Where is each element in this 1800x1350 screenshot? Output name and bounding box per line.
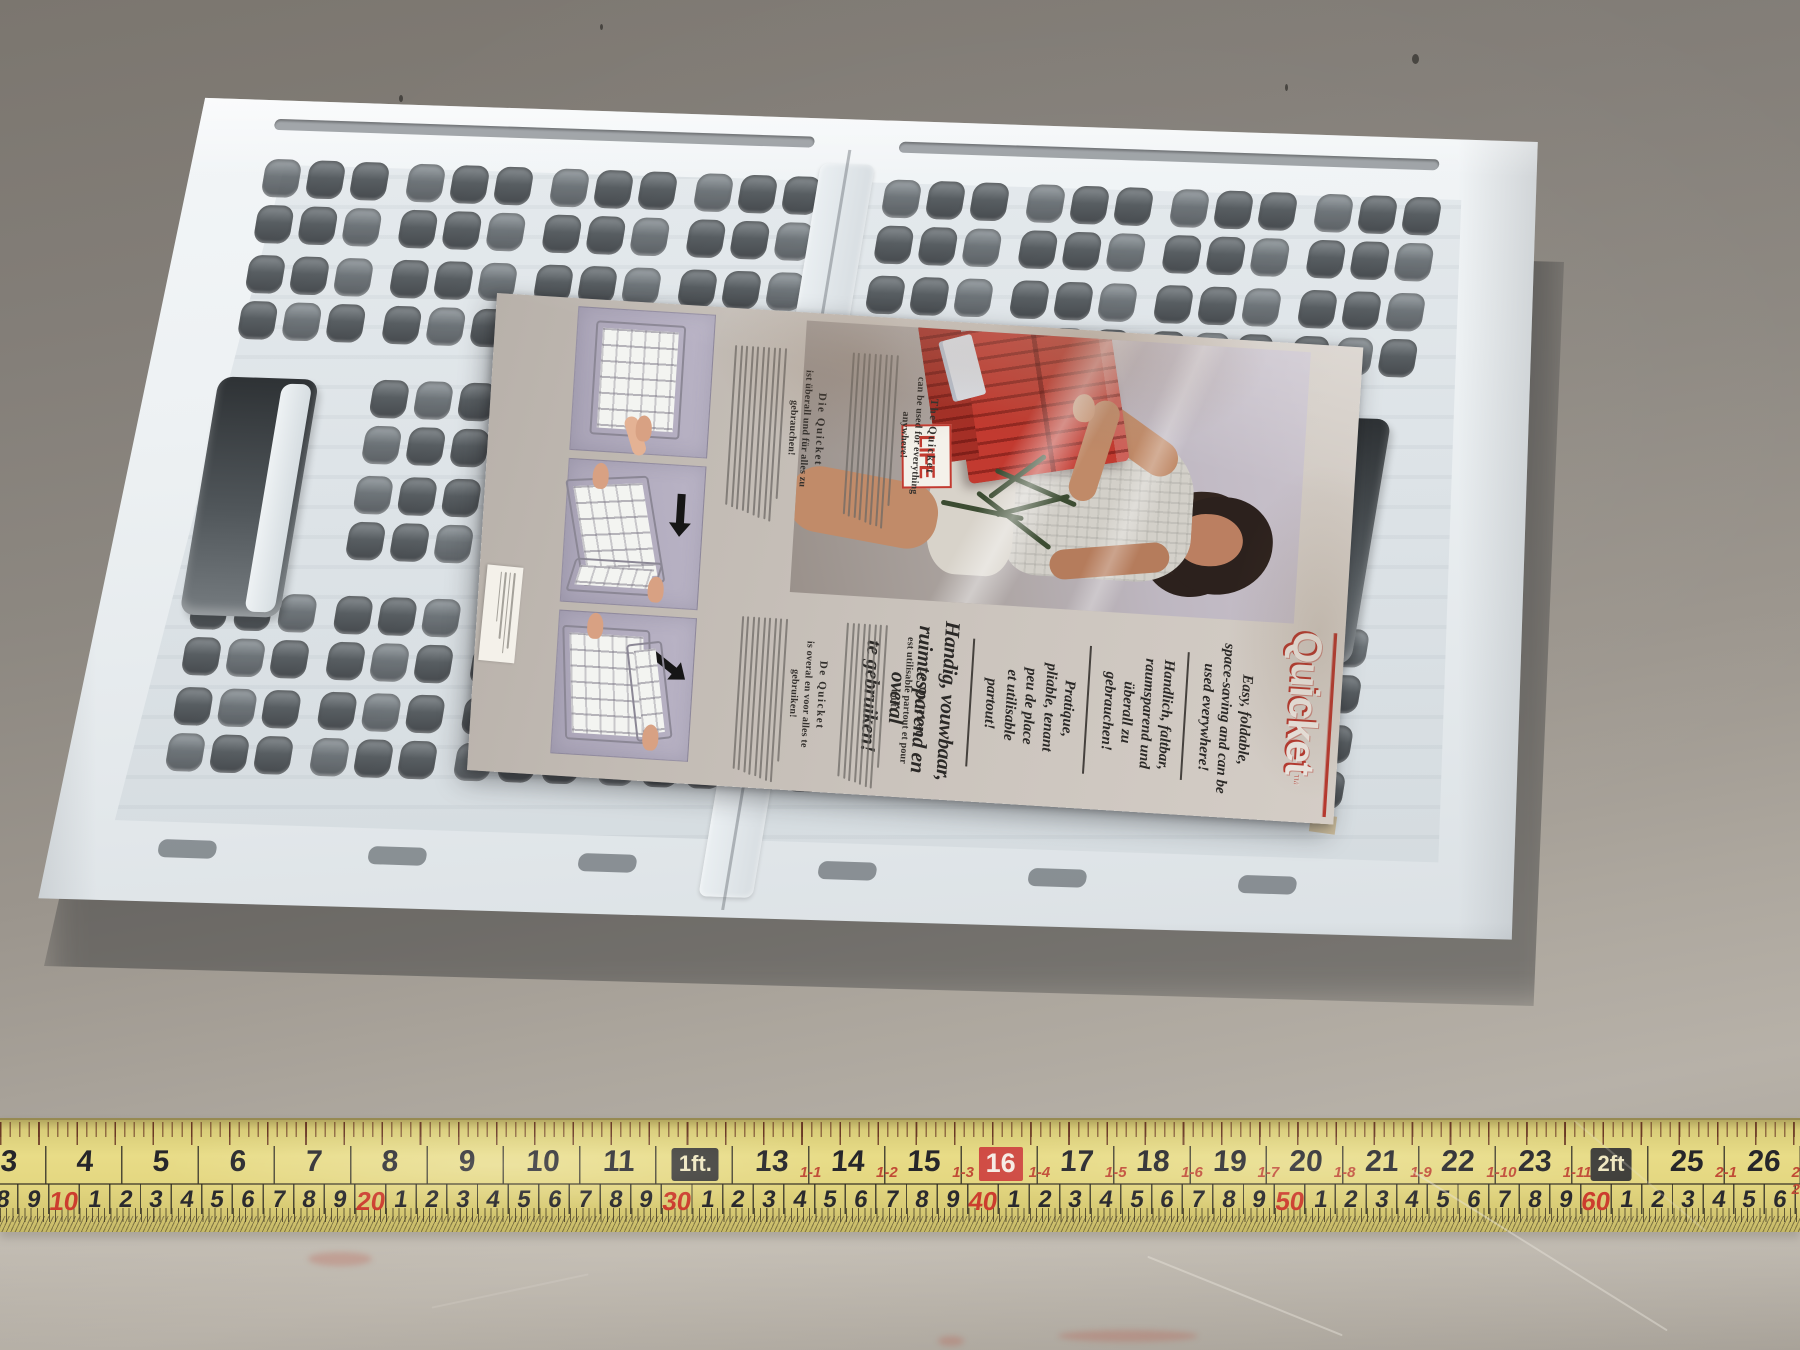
crate-slot [388,523,430,562]
crate-slot [253,205,295,244]
inch-number: 23 [1517,1145,1553,1179]
feet-inches-label: 1-7 [1258,1164,1280,1181]
cm-number: 1 [1005,1186,1022,1214]
inch-number: 4 [75,1145,94,1179]
bottom-rim-slot [817,861,878,881]
cm-number: 3 [1067,1186,1084,1214]
crate-slot [917,227,959,266]
cm-number: 8 [301,1186,318,1214]
crate-slot [1052,282,1094,321]
crate-slot [1340,291,1382,330]
cm-number: 8 [1220,1186,1237,1214]
inch-division-lines [0,1146,1800,1184]
crate-slot [873,225,915,264]
inch-number: 11 [602,1145,636,1179]
cm-number: 6 [546,1186,563,1214]
crate-slot [1161,235,1203,274]
crate-slot [332,258,374,297]
cm-number: 4 [178,1186,195,1214]
headline-divider [1082,646,1092,774]
cm-number: 3 [760,1186,777,1214]
crate-slot [324,642,366,681]
hand-illustration [647,576,665,603]
crate-slot [412,381,454,420]
plant-leaf [995,468,1078,508]
crate-slot [1312,194,1354,233]
crate-slot [164,733,206,772]
crate-slot [360,426,402,465]
step-panel-2 [560,458,707,610]
crate-slot [1349,241,1391,280]
mm-ticks [0,1208,1800,1222]
cm-number: 1 [393,1186,410,1214]
crate-slot [341,208,383,247]
crate-slot [316,692,358,731]
bottom-rim-slot [1027,868,1088,888]
feet-inches-label: 1-11 [1563,1164,1592,1181]
leaflet-sheet: Quicket™ Easy, foldable,space-saving and… [467,293,1363,825]
text-column-french: Le Quicketest utilisable partout et pour… [834,613,934,784]
scale-divider-line [0,1183,1800,1185]
crate-slot [288,256,330,295]
crate-slot [172,687,214,726]
crate-slot [396,477,438,516]
inch-number: 6 [228,1145,247,1179]
crate-slot [260,159,302,198]
crate-slot [332,596,374,635]
feet-inches-label: 1-3 [952,1164,974,1181]
feet-inches-label: 1-8 [1334,1164,1356,1181]
crate-slot [216,688,258,727]
quarter-inch-ticks [0,1122,1800,1145]
photo-scene: Quicket™ Easy, foldable,space-saving and… [0,0,1800,1350]
feet-inches-label: 1-2 [876,1164,898,1181]
inch-number: 26 [1746,1145,1782,1179]
sixteen-inch-mark: 16 [979,1147,1023,1181]
crate-slot [1152,285,1194,324]
cm-number: 9 [944,1186,961,1214]
crate-slot [1384,293,1426,332]
inch-number: 7 [304,1145,323,1179]
inch-number: 20 [1288,1145,1324,1179]
crate-slot [636,171,678,210]
crate-slot [1393,243,1435,282]
cm-number: 8 [1526,1186,1543,1214]
crate-slot [412,644,454,683]
cm-number: 2 [423,1186,440,1214]
crate-slot [692,173,734,212]
crate-slot [1105,233,1147,272]
crate-slot [404,694,446,733]
crate-slot [864,275,906,314]
plant-leaf [976,490,1052,550]
feet-inches-label: 2-2 [1792,1164,1800,1198]
cm-number: 2 [730,1186,747,1214]
cm-number: 1 [699,1186,716,1214]
cm-number: 5 [515,1186,532,1214]
cm-number: 4 [791,1186,808,1214]
foot-mark: 1ft. [672,1148,719,1181]
plant-leaf [988,454,1047,500]
woman-shorts [924,457,1017,578]
crate-slot [432,261,474,300]
cm-number: 6 [852,1186,869,1214]
cm-number: 20 [354,1186,387,1217]
measuring-tape: 345678910111ft.131-1141-2151-3161-4171-5… [0,1118,1800,1232]
crate-slot [432,524,474,563]
bottom-rim-slot [367,846,428,866]
woman-torso [1003,422,1197,585]
inch-number: 9 [457,1145,476,1179]
text-column-english: The Quicketcan be used for everythingany… [839,343,945,525]
crate-slot [448,165,490,204]
crate-slot [344,522,386,561]
instruction-leaflet: Quicket™ Easy, foldable,space-saving and… [467,293,1363,825]
feet-inches-label: 1-10 [1486,1164,1516,1181]
crate-slot [541,214,583,253]
cm-number: 1 [86,1186,103,1214]
crate-slot [720,271,762,310]
cm-number: 60 [1580,1186,1613,1217]
crate-slot [420,598,462,637]
inch-number: 18 [1135,1145,1171,1179]
hatch-band [0,1216,1800,1232]
cm-number: 7 [883,1186,900,1214]
crate-slot [308,738,350,777]
inch-number: 21 [1364,1145,1400,1179]
arrow-icon [676,494,686,524]
cm-number: 5 [1741,1186,1758,1214]
crate-slot [425,307,467,346]
inch-number: 14 [830,1145,866,1179]
plant-leaf [995,494,1070,518]
cm-number: 7 [1496,1186,1513,1214]
cm-number: 1 [1312,1186,1329,1214]
crate-slot [404,164,446,203]
crate-slot [1249,238,1291,277]
text-column-german: Die Quicketist überall und für alles zug… [721,336,832,518]
column-title-nl: De Quicketis overal en voor alles tegebr… [781,610,833,778]
leaflet-masthead: Quicket™ [1276,630,1337,817]
cm-division-lines [0,1184,1800,1214]
inch-number: 8 [381,1145,400,1179]
crate-slot [396,740,438,779]
cm-number: 6 [1771,1186,1788,1214]
crate-slot [1377,339,1419,378]
crate-slot [368,643,410,682]
cm-number: 3 [148,1186,165,1214]
headline-en: Easy, foldable,space-saving and can beus… [1189,623,1259,814]
crate-slot [1068,186,1110,225]
cm-number: 50 [1273,1186,1306,1217]
crate-slot [585,216,627,255]
red-quicket-crate [947,321,1129,485]
feet-inches-label: 1-1 [800,1164,822,1181]
woman-hair [1162,494,1276,599]
cm-number: 4 [1710,1186,1727,1214]
crate-slot [880,179,922,218]
crate-slot [952,278,994,317]
crate-slot [325,304,367,343]
woman-arm [1050,373,1185,484]
woman-hand [1072,393,1096,422]
cm-number: 9 [1557,1186,1574,1214]
crate-slot [360,693,402,732]
bottom-rim-slot [1237,875,1298,895]
text-column-dutch: De Quicketis overal en voor alles tegebr… [729,607,834,779]
crate-slot [244,255,286,294]
crate-slot [736,175,778,214]
feet-inches-label: 1-4 [1029,1164,1051,1181]
cm-number: 10 [48,1186,81,1217]
crate-slot [441,211,483,250]
cm-number: 9 [331,1186,348,1214]
crate-slot [404,427,446,466]
cm-number: 30 [660,1186,693,1217]
table-speck [1285,84,1288,91]
crate-slot [676,269,718,308]
bottom-rim-slot [157,839,218,859]
cm-number: 1 [1618,1186,1635,1214]
woman-arm [1048,541,1170,580]
cm-number: 5 [822,1186,839,1214]
cm-number: 4 [485,1186,502,1214]
crate-slot [224,638,266,677]
headline-divider [965,639,975,767]
headline-fr: Pratique,pliable, tenantpeu de placeet u… [974,609,1083,803]
feet-inches-label: 1-5 [1105,1164,1127,1181]
fly-speck [1412,54,1419,64]
crate-slot [348,162,390,201]
cm-number: 6 [1159,1186,1176,1214]
plant-leaf [941,500,1024,522]
cm-number: 8 [0,1186,12,1214]
crate-slot [548,168,590,207]
cm-number: 9 [638,1186,655,1214]
cm-number: 4 [1404,1186,1421,1214]
crate-slot [352,476,394,515]
crate-slot [237,301,279,340]
table-speck [600,24,603,30]
handle-grip [244,384,312,613]
crate-slot [388,260,430,299]
crate-slot [268,640,310,679]
headline-divider [1180,652,1190,780]
inch-number: 17 [1059,1145,1095,1179]
woman-face [1175,512,1244,568]
cm-number: 7 [577,1186,594,1214]
inch-number: 19 [1212,1145,1248,1179]
cm-number: 2 [1036,1186,1053,1214]
trademark-symbol: ™ [1288,774,1303,787]
crate-slot [1400,197,1442,236]
crate-slot [485,212,527,251]
red-scuff [1058,1330,1198,1342]
crate-slot [1196,286,1238,325]
crate-slot [304,160,346,199]
crate-slot [1017,230,1059,269]
inch-number: 3 [0,1145,18,1179]
crate-slot [208,734,250,773]
crate-slot [1061,232,1103,271]
woman-forearm [1065,397,1123,505]
cm-number: 8 [607,1186,624,1214]
crate-slot [1008,280,1050,319]
cm-number: 3 [454,1186,471,1214]
cm-number: 6 [239,1186,256,1214]
step-panel-1 [569,306,716,458]
crate-slot [352,739,394,778]
crate-slot [260,690,302,729]
crate-slot [961,228,1003,267]
crate-slot [1096,283,1138,322]
red-scuff [308,1252,372,1266]
magazines [942,334,986,402]
crate-slot [1024,184,1066,223]
crate-slot [297,206,339,245]
crate-slot [924,181,966,220]
cm-number: 5 [1128,1186,1145,1214]
crate-slot [448,428,490,467]
cm-number: 7 [270,1186,287,1214]
crate-slot [492,166,534,205]
cm-number: 4 [1097,1186,1114,1214]
crate-slot [1305,240,1347,279]
crate-handle-left [179,376,319,617]
crate-slot [281,302,323,341]
crate-slot [685,219,727,258]
table-surface-lower [0,1232,1800,1350]
crate-slot [729,221,771,260]
inch-number: 13 [754,1145,790,1179]
crate-slot [968,182,1010,221]
feet-inches-label: 2-1 [1715,1164,1737,1181]
inch-number: 22 [1441,1145,1477,1179]
crate-slot [180,637,222,676]
cm-number: 7 [1189,1186,1206,1214]
cm-number: 5 [209,1186,226,1214]
headline-de: Handlich, faltbar,raumsparend undüberall… [1092,617,1182,810]
cm-number: 2 [1343,1186,1360,1214]
step-panel-3 [550,610,697,762]
bottom-rim-slot [577,853,638,873]
crate-slot [381,306,423,345]
inch-number: 25 [1669,1145,1705,1179]
cm-number: 9 [25,1186,42,1214]
cm-number: 40 [967,1186,1000,1217]
crate-slot [1212,190,1254,229]
crate-slot [252,736,294,775]
address-sticker [478,564,523,663]
crate-slot [376,597,418,636]
crate-slot [1240,288,1282,327]
table-speck [399,95,403,102]
inch-number: 15 [906,1145,942,1179]
crate-slot [1205,236,1247,275]
crate-slot [908,277,950,316]
crate-slot [629,217,671,256]
crate-slot [440,478,482,517]
feet-inches-label: 1-6 [1181,1164,1203,1181]
red-scuff [938,1336,964,1346]
cm-number: 9 [1251,1186,1268,1214]
crate-slot [1356,195,1398,234]
crate-slot [1256,192,1298,231]
crate-slot [1296,290,1338,329]
cm-number: 3 [1373,1186,1390,1214]
fraction-ticks [0,1122,1800,1137]
crate-slot [592,170,634,209]
crate-slot [397,210,439,249]
cm-number: 8 [914,1186,931,1214]
inch-number: 5 [152,1145,171,1179]
inch-number: 10 [525,1145,561,1179]
crate-slot [368,380,410,419]
crate-slot [1168,189,1210,228]
crate-slot [1112,187,1154,226]
hand-illustration [642,724,660,751]
cm-number: 2 [117,1186,134,1214]
brand-logo: Quicket [1276,630,1331,776]
